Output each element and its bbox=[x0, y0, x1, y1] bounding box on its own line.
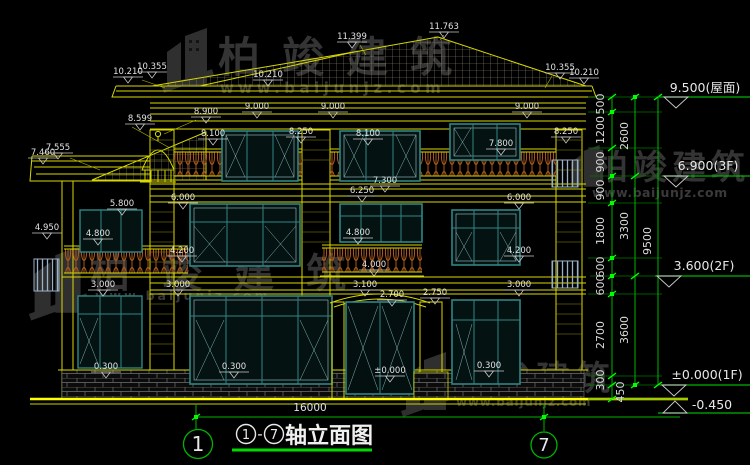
window-2f-right bbox=[452, 210, 520, 265]
dim-value: 9500 bbox=[641, 227, 654, 255]
elevation-label: 9.000 bbox=[242, 102, 272, 118]
dim-value: 500 bbox=[594, 94, 607, 115]
svg-text:2.750: 2.750 bbox=[423, 288, 447, 298]
svg-text:8.250: 8.250 bbox=[554, 127, 578, 137]
side-balcony-left bbox=[34, 259, 59, 291]
dim-value: 3600 bbox=[618, 316, 631, 344]
cad-elevation-drawing: 柏竣建筑 www.baijunjz.com 柏竣建筑 www.baijunjz.… bbox=[0, 0, 750, 465]
svg-text:11.399: 11.399 bbox=[337, 32, 367, 42]
dim-value: 900 bbox=[594, 152, 607, 173]
svg-text:7: 7 bbox=[538, 435, 549, 456]
title-separator: - bbox=[257, 425, 262, 443]
svg-text:3.000: 3.000 bbox=[91, 280, 115, 290]
elevation-label: 6.000 bbox=[504, 193, 534, 209]
svg-text:-0.450: -0.450 bbox=[692, 397, 732, 412]
svg-text:9.000: 9.000 bbox=[245, 102, 269, 112]
svg-text:3.100: 3.100 bbox=[353, 280, 377, 290]
svg-text:8.900: 8.900 bbox=[194, 107, 218, 117]
svg-text:7.300: 7.300 bbox=[373, 176, 397, 186]
svg-text:2.700: 2.700 bbox=[380, 290, 404, 300]
svg-text:7.800: 7.800 bbox=[489, 139, 513, 149]
side-balcony-right-2f bbox=[552, 261, 578, 288]
window-3f-left bbox=[222, 131, 298, 181]
level-marker-roof: 9.500(屋面) bbox=[658, 80, 750, 108]
dim-value: 600 bbox=[594, 257, 607, 278]
svg-text:10.355: 10.355 bbox=[137, 62, 167, 72]
svg-text:0.300: 0.300 bbox=[222, 362, 246, 372]
svg-text:3.000: 3.000 bbox=[166, 280, 190, 290]
svg-text:6.000: 6.000 bbox=[507, 193, 531, 203]
elevation-label: 8.599 bbox=[125, 114, 155, 130]
svg-text:8.100: 8.100 bbox=[356, 129, 380, 139]
dim-value: 1200 bbox=[594, 116, 607, 144]
svg-text:9.000: 9.000 bbox=[321, 102, 345, 112]
elevation-label: 9.000 bbox=[512, 102, 542, 118]
svg-text:0.300: 0.300 bbox=[94, 362, 118, 372]
svg-text:8.599: 8.599 bbox=[128, 114, 152, 124]
svg-text:3.000: 3.000 bbox=[507, 280, 531, 290]
svg-text:6.250: 6.250 bbox=[350, 186, 374, 196]
svg-text:6.900(3F): 6.900(3F) bbox=[678, 158, 739, 173]
overall-dimension: 16000 bbox=[293, 402, 326, 414]
svg-text:10.210: 10.210 bbox=[253, 70, 283, 80]
svg-text:4.800: 4.800 bbox=[346, 228, 370, 238]
dim-value: 2700 bbox=[594, 321, 607, 349]
elevation-label: 9.000 bbox=[318, 102, 348, 118]
entrance-door bbox=[330, 294, 448, 399]
svg-text:10.210: 10.210 bbox=[569, 68, 599, 78]
svg-text:8.250: 8.250 bbox=[289, 127, 313, 137]
drawing-title: 1 - 7 轴立面图 bbox=[232, 423, 373, 450]
dim-value: 450 bbox=[614, 382, 627, 403]
svg-text:3.600(2F): 3.600(2F) bbox=[674, 258, 735, 273]
drawing-canvas: 柏竣建筑 www.baijunjz.com 柏竣建筑 www.baijunjz.… bbox=[0, 0, 750, 465]
svg-text:8.100: 8.100 bbox=[201, 129, 225, 139]
dim-value: 2600 bbox=[618, 122, 631, 150]
elevation-label: 6.250 bbox=[347, 186, 377, 202]
svg-text:1: 1 bbox=[192, 432, 205, 456]
axis-bubble-1: 1 bbox=[184, 430, 213, 459]
axis-bubble-7: 7 bbox=[531, 432, 557, 458]
svg-text:4.200: 4.200 bbox=[170, 246, 194, 256]
svg-text:11.763: 11.763 bbox=[429, 22, 459, 32]
dim-value: 3300 bbox=[618, 212, 631, 240]
svg-text:4.200: 4.200 bbox=[507, 246, 531, 256]
elevation-label: 7.300 bbox=[370, 176, 400, 192]
svg-text:5.800: 5.800 bbox=[110, 199, 134, 209]
svg-text:0.300: 0.300 bbox=[477, 361, 501, 371]
dimension-chains: 500 1200 900 900 1800 600 600 2700 300 4… bbox=[588, 94, 750, 414]
svg-text:±0.000: ±0.000 bbox=[374, 366, 405, 376]
dim-value: 600 bbox=[594, 275, 607, 296]
side-balcony-right-3f bbox=[552, 160, 578, 187]
svg-text:4.950: 4.950 bbox=[35, 223, 59, 233]
dim-value: 900 bbox=[594, 180, 607, 201]
window-1f-left-wing bbox=[78, 296, 142, 368]
window-1f-left bbox=[190, 296, 332, 384]
title-text: 轴立面图 bbox=[285, 423, 373, 449]
level-markers: 9.500(屋面) 6.900(3F) 3.600(2F) ±0.000(1F)… bbox=[655, 80, 750, 413]
svg-text:6.000: 6.000 bbox=[171, 193, 195, 203]
svg-text:9.500(屋面): 9.500(屋面) bbox=[670, 80, 741, 95]
svg-text:±0.000(1F): ±0.000(1F) bbox=[671, 367, 742, 382]
svg-text:9.000: 9.000 bbox=[515, 102, 539, 112]
level-marker-2f: 3.600(2F) bbox=[655, 258, 750, 287]
svg-text:4.000: 4.000 bbox=[362, 260, 386, 270]
dim-value: 1800 bbox=[594, 217, 607, 245]
title-axis-to: 7 bbox=[270, 428, 278, 443]
svg-text:4.800: 4.800 bbox=[86, 229, 110, 239]
dim-value: 300 bbox=[594, 370, 607, 391]
window-2f-left bbox=[190, 204, 300, 266]
title-axis-from: 1 bbox=[242, 428, 250, 443]
elevation-label: 4.950 bbox=[32, 223, 62, 239]
level-marker-1f: ±0.000(1F) bbox=[660, 367, 750, 396]
svg-text:7.555: 7.555 bbox=[46, 143, 70, 153]
